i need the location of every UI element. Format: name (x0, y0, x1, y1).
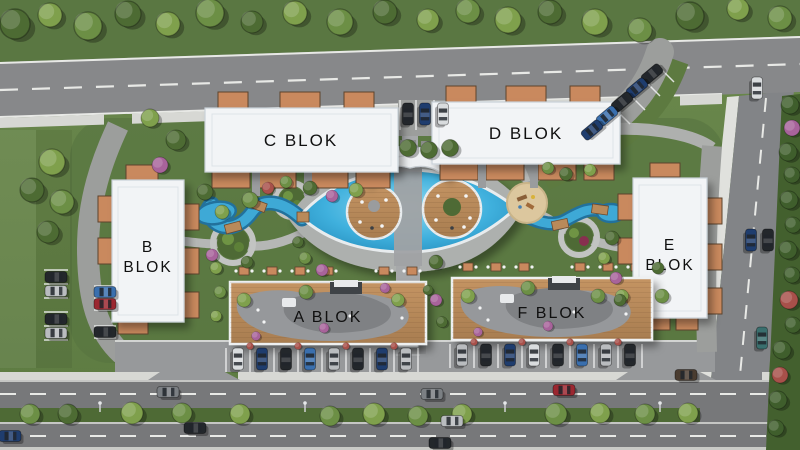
chair (306, 269, 309, 272)
chair (474, 265, 477, 268)
car (94, 327, 119, 341)
table-top (519, 263, 529, 271)
car (45, 314, 70, 328)
balcony-module (650, 163, 680, 177)
balcony-module (676, 317, 698, 330)
chair (570, 265, 573, 268)
car (254, 348, 268, 373)
chair (502, 265, 505, 268)
car (478, 344, 492, 369)
chair (614, 265, 617, 268)
block-a[interactable]: A BLOK (230, 280, 426, 344)
chair (458, 265, 461, 268)
mow-stripe (0, 130, 36, 368)
balcony-module (486, 162, 524, 180)
balcony-module (706, 198, 722, 224)
car (553, 385, 578, 399)
balcony-module (446, 86, 476, 102)
chair (278, 269, 281, 272)
lamp-head (503, 401, 507, 405)
balcony-module (118, 321, 148, 334)
table-top (463, 263, 473, 271)
car (435, 103, 449, 128)
balcony-module (183, 292, 199, 318)
car (441, 416, 466, 430)
table-top (575, 263, 585, 271)
block-d-label: D BLOK (489, 124, 563, 143)
chair (626, 265, 629, 268)
balcony-module (183, 248, 199, 274)
lamp-head (303, 401, 307, 405)
car (278, 348, 292, 373)
car (526, 344, 540, 369)
car (421, 389, 446, 403)
car (230, 348, 244, 373)
table-top (379, 267, 389, 275)
roof-furniture (282, 298, 296, 307)
car (400, 103, 414, 128)
block-c-label: C BLOK (264, 131, 338, 150)
bottom-sidewalk (0, 372, 160, 380)
car (45, 272, 70, 286)
chair (586, 265, 589, 268)
block-a-label: A BLOK (294, 309, 363, 326)
balcony-module (706, 288, 722, 314)
balcony-module (98, 196, 112, 222)
car (157, 387, 182, 401)
site-plan-canvas: C BLOK D BLOK B BLOK E BLOK (0, 0, 800, 450)
car (675, 370, 700, 384)
car (0, 431, 24, 445)
balcony-module (506, 86, 546, 102)
chair (250, 269, 253, 272)
car (502, 344, 516, 369)
car (417, 103, 431, 128)
chair (374, 269, 377, 272)
car (94, 299, 119, 313)
chair (486, 265, 489, 268)
south-entry-west (148, 372, 240, 380)
chair (598, 265, 601, 268)
car (374, 348, 388, 373)
chair (418, 269, 421, 272)
lamp-head (98, 401, 102, 405)
block-f[interactable]: F BLOK (452, 276, 652, 340)
block-f-label: F BLOK (518, 305, 587, 322)
car (754, 327, 768, 352)
car (326, 348, 340, 373)
bottom-sidewalk (238, 372, 628, 380)
balcony-module (618, 194, 634, 220)
car (598, 344, 612, 369)
chair (334, 269, 337, 272)
car (398, 348, 412, 373)
lamp-head (658, 401, 662, 405)
sand-playground (507, 183, 547, 223)
car (184, 423, 209, 437)
chair (290, 269, 293, 272)
entry-stem (530, 164, 538, 188)
car (45, 286, 70, 300)
chair (402, 269, 405, 272)
car (574, 344, 588, 369)
balcony-module (570, 86, 600, 102)
car (743, 229, 757, 254)
entry-stem (478, 164, 486, 188)
roof-access-cap (334, 280, 358, 287)
balcony-module (706, 244, 722, 270)
chair (234, 269, 237, 272)
site-plan-render: C BLOK D BLOK B BLOK E BLOK (0, 0, 800, 450)
block-b-label-line1: B (142, 239, 154, 256)
car (429, 438, 454, 450)
table-top (267, 267, 277, 275)
car (760, 229, 774, 254)
balcony-module (440, 162, 478, 180)
balcony-module (280, 92, 320, 108)
car (302, 348, 316, 373)
car (550, 344, 564, 369)
chair (262, 269, 265, 272)
balcony-module (344, 92, 374, 108)
chair (514, 265, 517, 268)
car (454, 344, 468, 369)
roof-access-cap (552, 276, 576, 283)
balcony-module (98, 238, 112, 264)
car (45, 328, 70, 342)
chair (390, 269, 393, 272)
balcony-module (218, 92, 248, 108)
balcony-module (212, 170, 250, 188)
top-sidewalk (680, 94, 722, 106)
car (94, 287, 119, 301)
balcony-module (183, 204, 199, 230)
block-b-label-line2: BLOK (123, 259, 172, 276)
block-e-label-line1: E (664, 237, 676, 254)
pool-deck-east (423, 180, 481, 238)
south-entry-east (616, 372, 716, 380)
car (749, 77, 763, 102)
car (350, 348, 364, 373)
table-top (491, 263, 501, 271)
roof-furniture (500, 294, 514, 303)
chair (530, 265, 533, 268)
car (622, 344, 636, 369)
table-top (295, 267, 305, 275)
table-top (407, 267, 417, 275)
